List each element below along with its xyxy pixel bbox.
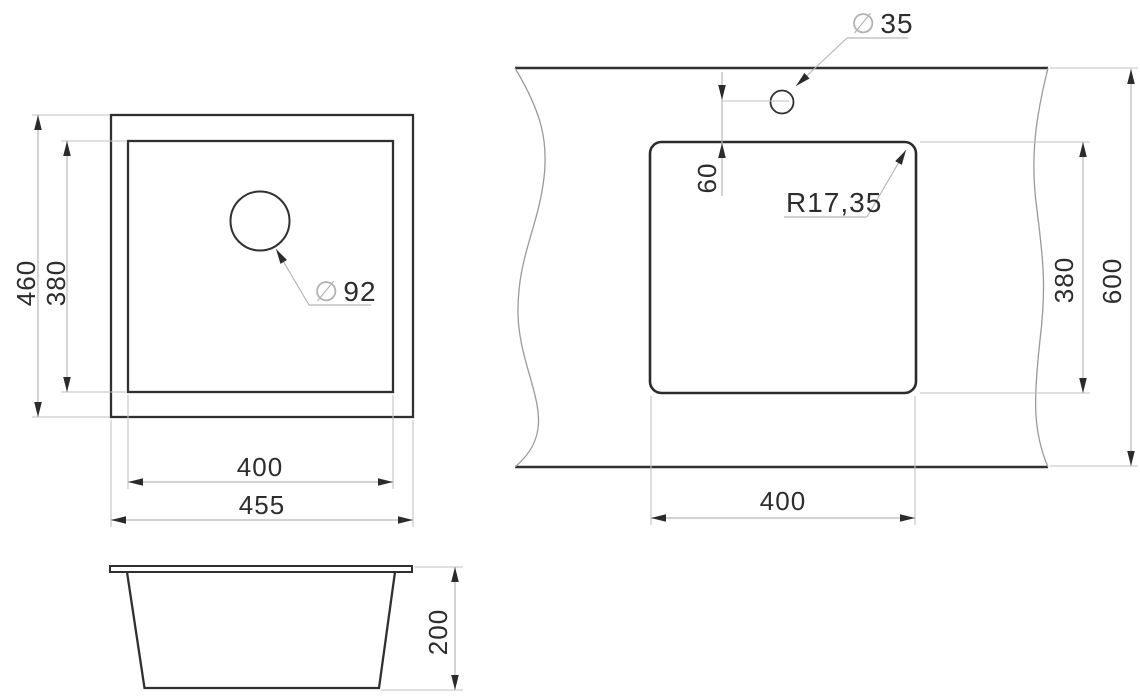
sink-bowl-profile <box>127 572 395 688</box>
dimension-arrow <box>63 377 71 392</box>
dim-label-outer-height: 460 <box>11 260 41 306</box>
dimension-arrow <box>718 143 726 158</box>
dimension-arrow <box>378 478 393 486</box>
dimension-arrow <box>1127 451 1135 466</box>
break-line-right <box>1034 68 1048 467</box>
dimension-arrow <box>398 516 413 524</box>
dim-cutout-height: 380 <box>920 142 1090 393</box>
sink-rim-profile <box>110 566 412 572</box>
dimension-arrow <box>718 85 726 100</box>
faucet-diameter-value: 35 <box>880 8 913 39</box>
dim-inner-height: 380 <box>41 141 126 392</box>
leader-arrow <box>895 148 909 165</box>
dimension-arrow <box>451 675 459 690</box>
sink-side-view: 200 <box>110 566 463 690</box>
corner-radius-label: R17,35 <box>786 187 882 218</box>
dimension-arrow <box>63 141 71 156</box>
drain-diameter-label: ∅92 <box>314 275 377 308</box>
dimension-arrow <box>651 514 666 522</box>
diameter-symbol: ∅ <box>851 7 876 40</box>
drawing-canvas: 460 380 ∅92 400 <box>0 0 1140 700</box>
drain-diameter-value: 92 <box>343 276 376 307</box>
drain-diameter-callout: ∅92 <box>273 247 377 308</box>
dimension-arrow <box>451 567 459 582</box>
faucet-diameter-label: ∅35 <box>851 7 914 40</box>
dimension-arrow <box>34 402 42 417</box>
cutout-outline <box>650 142 916 393</box>
sink-outer-outline <box>111 115 413 417</box>
dim-label-inner-width: 400 <box>237 452 283 482</box>
dimension-arrow <box>1079 142 1087 157</box>
dimension-arrow <box>128 478 143 486</box>
drain-hole <box>231 192 290 251</box>
dimension-arrow <box>111 516 126 524</box>
faucet-diameter-callout: ∅35 <box>793 7 913 89</box>
dimension-arrow <box>34 115 42 130</box>
dim-label-outer-width: 455 <box>239 490 285 520</box>
leader-arrow <box>273 247 287 264</box>
faucet-hole <box>771 91 794 114</box>
dim-label-cutout-width: 400 <box>760 486 806 516</box>
dim-cutout-width: 400 <box>651 396 915 525</box>
dimension-arrow <box>900 514 915 522</box>
countertop-cutout-view: ∅35 60 R17,35 380 <box>515 7 1138 525</box>
break-line-left <box>515 68 545 467</box>
dim-faucet-offset: 60 <box>692 72 789 196</box>
dim-label-counter-depth: 600 <box>1097 258 1127 304</box>
sink-bowl-outline <box>128 141 393 392</box>
diameter-symbol: ∅ <box>314 275 339 308</box>
corner-radius-callout: R17,35 <box>784 148 909 218</box>
technical-drawing: 460 380 ∅92 400 <box>0 0 1140 700</box>
dim-label-inner-height: 380 <box>41 260 71 306</box>
dimension-arrow <box>1079 378 1087 393</box>
dim-label-cutout-height: 380 <box>1049 257 1079 303</box>
dimension-arrow <box>1127 69 1135 84</box>
dim-label-depth: 200 <box>423 609 453 655</box>
dim-label-faucet-offset: 60 <box>692 163 722 194</box>
dim-inner-width: 400 <box>128 395 393 489</box>
sink-top-view: 460 380 ∅92 400 <box>11 115 413 527</box>
